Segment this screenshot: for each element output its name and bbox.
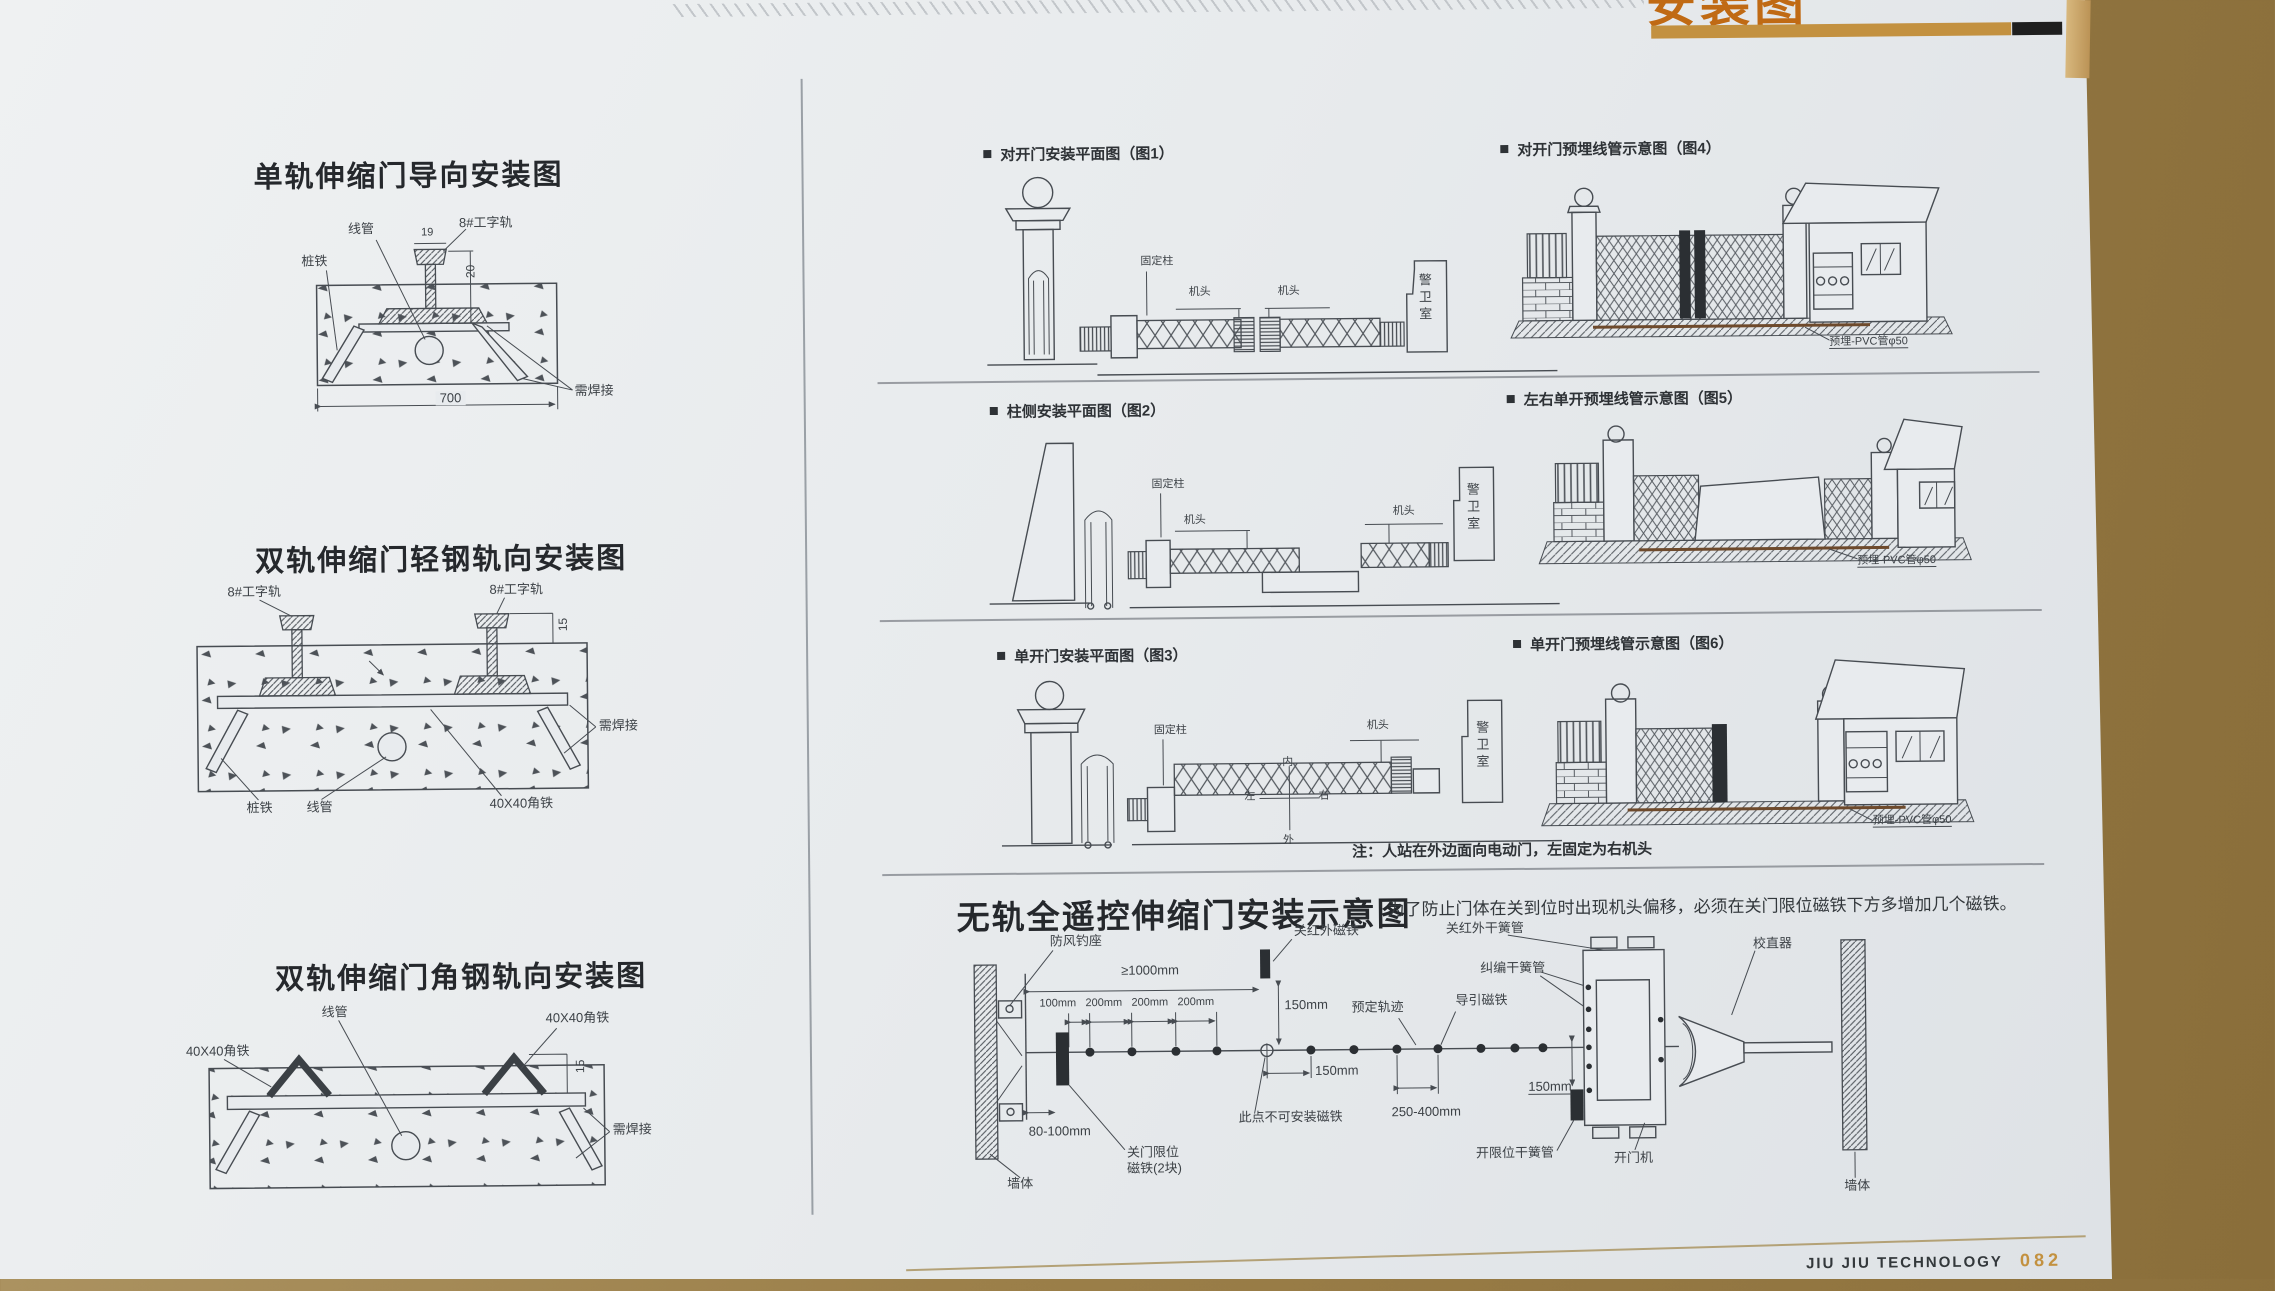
- machine-head-label: 机头: [1184, 514, 1206, 526]
- pile-iron-label: 桩铁: [247, 801, 273, 816]
- fig4-title: 对开门预埋线管示意图（图4）: [1517, 140, 1720, 159]
- bullet-square-icon: [983, 150, 991, 158]
- ibeam-rail-right-label: 8#工字轨: [489, 582, 543, 597]
- machine-head-label: 机头: [1367, 719, 1389, 731]
- bullet-square-icon: [997, 652, 1005, 660]
- conduit-label: 线管: [307, 800, 333, 815]
- correction-reed-switch-label: 纠编干簧管: [1480, 961, 1545, 976]
- dim-200mm: 200mm: [1177, 996, 1214, 1008]
- fig2-title: 柱侧安装平面图（图2）: [1007, 402, 1165, 421]
- angle-steel-left-label: 40X40角铁: [186, 1044, 250, 1059]
- open-limit-reed-switch-label: 开限位干簧管: [1476, 1146, 1554, 1161]
- header-stripes-decoration: [672, 0, 1644, 17]
- machine-head-label: 机头: [1278, 285, 1300, 297]
- wall-label-left: 墙体: [1007, 1177, 1033, 1192]
- dim-200mm: 200mm: [1131, 996, 1168, 1008]
- pvc-pipe-label: 预埋-PVC管φ50: [1829, 335, 1908, 349]
- close-ir-reed-switch-label: 关红外干簧管: [1446, 921, 1524, 936]
- dim-20: 20: [464, 265, 477, 278]
- ibeam-rail-left-label: 8#工字轨: [227, 585, 281, 600]
- dim-700: 700: [436, 391, 466, 406]
- compass-outer-label: 外: [1283, 834, 1294, 846]
- dim-250-400mm: 250-400mm: [1391, 1105, 1461, 1120]
- angle-steel-right-label: 40X40角铁: [546, 1011, 610, 1026]
- machine-head-label: 机头: [1189, 286, 1211, 298]
- fig4-elevation-drawing: [1455, 159, 2037, 377]
- dim-150mm: 150mm: [1528, 1079, 1572, 1095]
- bullet-square-icon: [1513, 640, 1521, 648]
- straightener-label: 校直器: [1753, 936, 1792, 951]
- ibeam-rail-label: 8#工字轨: [459, 216, 513, 231]
- angle-steel-label: 40X40角铁: [489, 796, 553, 811]
- dim-150mm: 150mm: [1284, 998, 1327, 1013]
- pvc-pipe-label: 预埋-PVC管φ50: [1857, 554, 1936, 568]
- conduit-label: 线管: [348, 222, 374, 237]
- fig5-elevation-drawing: [1458, 406, 2040, 607]
- weld-label: 需焊接: [575, 384, 614, 399]
- dim-19: 19: [421, 226, 433, 238]
- fixed-post-label: 固定柱: [1154, 724, 1187, 736]
- footer-page-number: 082: [2020, 1250, 2062, 1271]
- fig5-title: 左右单开预埋线管示意图（图5）: [1524, 390, 1743, 409]
- dim-80-100mm: 80-100mm: [1029, 1124, 1091, 1139]
- weld-label: 需焊接: [599, 718, 638, 733]
- conduit-label: 线管: [321, 1005, 347, 1020]
- header-black-bar: [2012, 22, 2062, 35]
- door-opener-label: 开门机: [1614, 1151, 1653, 1166]
- bullet-square-icon: [1500, 145, 1508, 153]
- fixed-post-label: 固定柱: [1140, 255, 1173, 267]
- section-rule-3: [882, 863, 2044, 876]
- dim-15: 15: [574, 1060, 587, 1073]
- diagram1-title: 单轨伸缩门导向安装图: [253, 151, 563, 196]
- fig5-header: 左右单开预埋线管示意图（图5）: [1507, 387, 1743, 410]
- dim-200mm: 200mm: [1085, 997, 1122, 1009]
- diagram2-title: 双轨伸缩门轻钢轨向安装图: [255, 535, 627, 581]
- diagram-double-rail-angle-steel: [168, 989, 690, 1219]
- dim-1000mm: ≥1000mm: [1121, 963, 1179, 978]
- dim-150mm: 150mm: [1315, 1064, 1358, 1079]
- column-divider-line: [801, 79, 814, 1215]
- fig4-header: 对开门预埋线管示意图（图4）: [1500, 137, 1721, 160]
- dim-100mm: 100mm: [1039, 997, 1076, 1009]
- no-magnet-point-label: 此点不可安装磁铁: [1239, 1110, 1343, 1125]
- diagram-double-rail-light-steel: [164, 574, 666, 829]
- close-ir-magnet-label: 关红外磁铁: [1294, 924, 1359, 939]
- close-limit-magnet-label-line2: 磁铁(2块): [1127, 1161, 1182, 1176]
- guide-magnet-label: 导引磁铁: [1455, 993, 1507, 1008]
- compass-right-label: 右: [1318, 790, 1329, 802]
- fig1-title: 对开门安装平面图（图1）: [1000, 145, 1173, 164]
- fig6-elevation-drawing: [1460, 646, 2042, 852]
- catalog-page: 安装图 INSTALLATION DRAWINGS 单轨伸缩门导向安装图 线管 …: [0, 0, 2275, 1279]
- footer-brand: JIU JIU TECHNOLOGY: [1806, 1253, 2003, 1272]
- planned-track-label: 预定轨迹: [1351, 1000, 1403, 1015]
- fig1-header: 对开门安装平面图（图1）: [983, 142, 1174, 165]
- bottom-section-tip: 为了防止门体在关到位时出现机头偏移，必须在关门限位磁铁下方多增加几个磁铁。: [1387, 889, 2016, 920]
- fixed-post-label: 固定柱: [1151, 478, 1184, 490]
- guard-room-label: 警卫室: [1416, 273, 1431, 324]
- pvc-pipe-label: 预埋-PVC管φ50: [1873, 814, 1952, 828]
- machine-head-label: 机头: [1393, 505, 1415, 517]
- bullet-square-icon: [1507, 395, 1515, 403]
- wall-label-right: 墙体: [1844, 1179, 1870, 1194]
- dim-15: 15: [557, 618, 570, 631]
- compass-left-label: 左: [1244, 791, 1255, 803]
- page-stack-edge: [2065, 0, 2090, 78]
- weld-label: 需焊接: [613, 1122, 652, 1137]
- pile-iron-label: 桩铁: [301, 254, 327, 269]
- header-gold-bar: [1651, 22, 2011, 38]
- bullet-square-icon: [990, 407, 998, 415]
- compass-inner-label: 内: [1282, 756, 1293, 768]
- wind-hook-seat-label: 防风钓座: [1050, 934, 1102, 949]
- trackless-gate-schematic: [943, 917, 1886, 1216]
- close-limit-magnet-label-line1: 关门限位: [1127, 1145, 1179, 1160]
- photo-of-catalog-page: { "header": {"title_cn": "安装图", "title_e…: [0, 0, 2275, 1279]
